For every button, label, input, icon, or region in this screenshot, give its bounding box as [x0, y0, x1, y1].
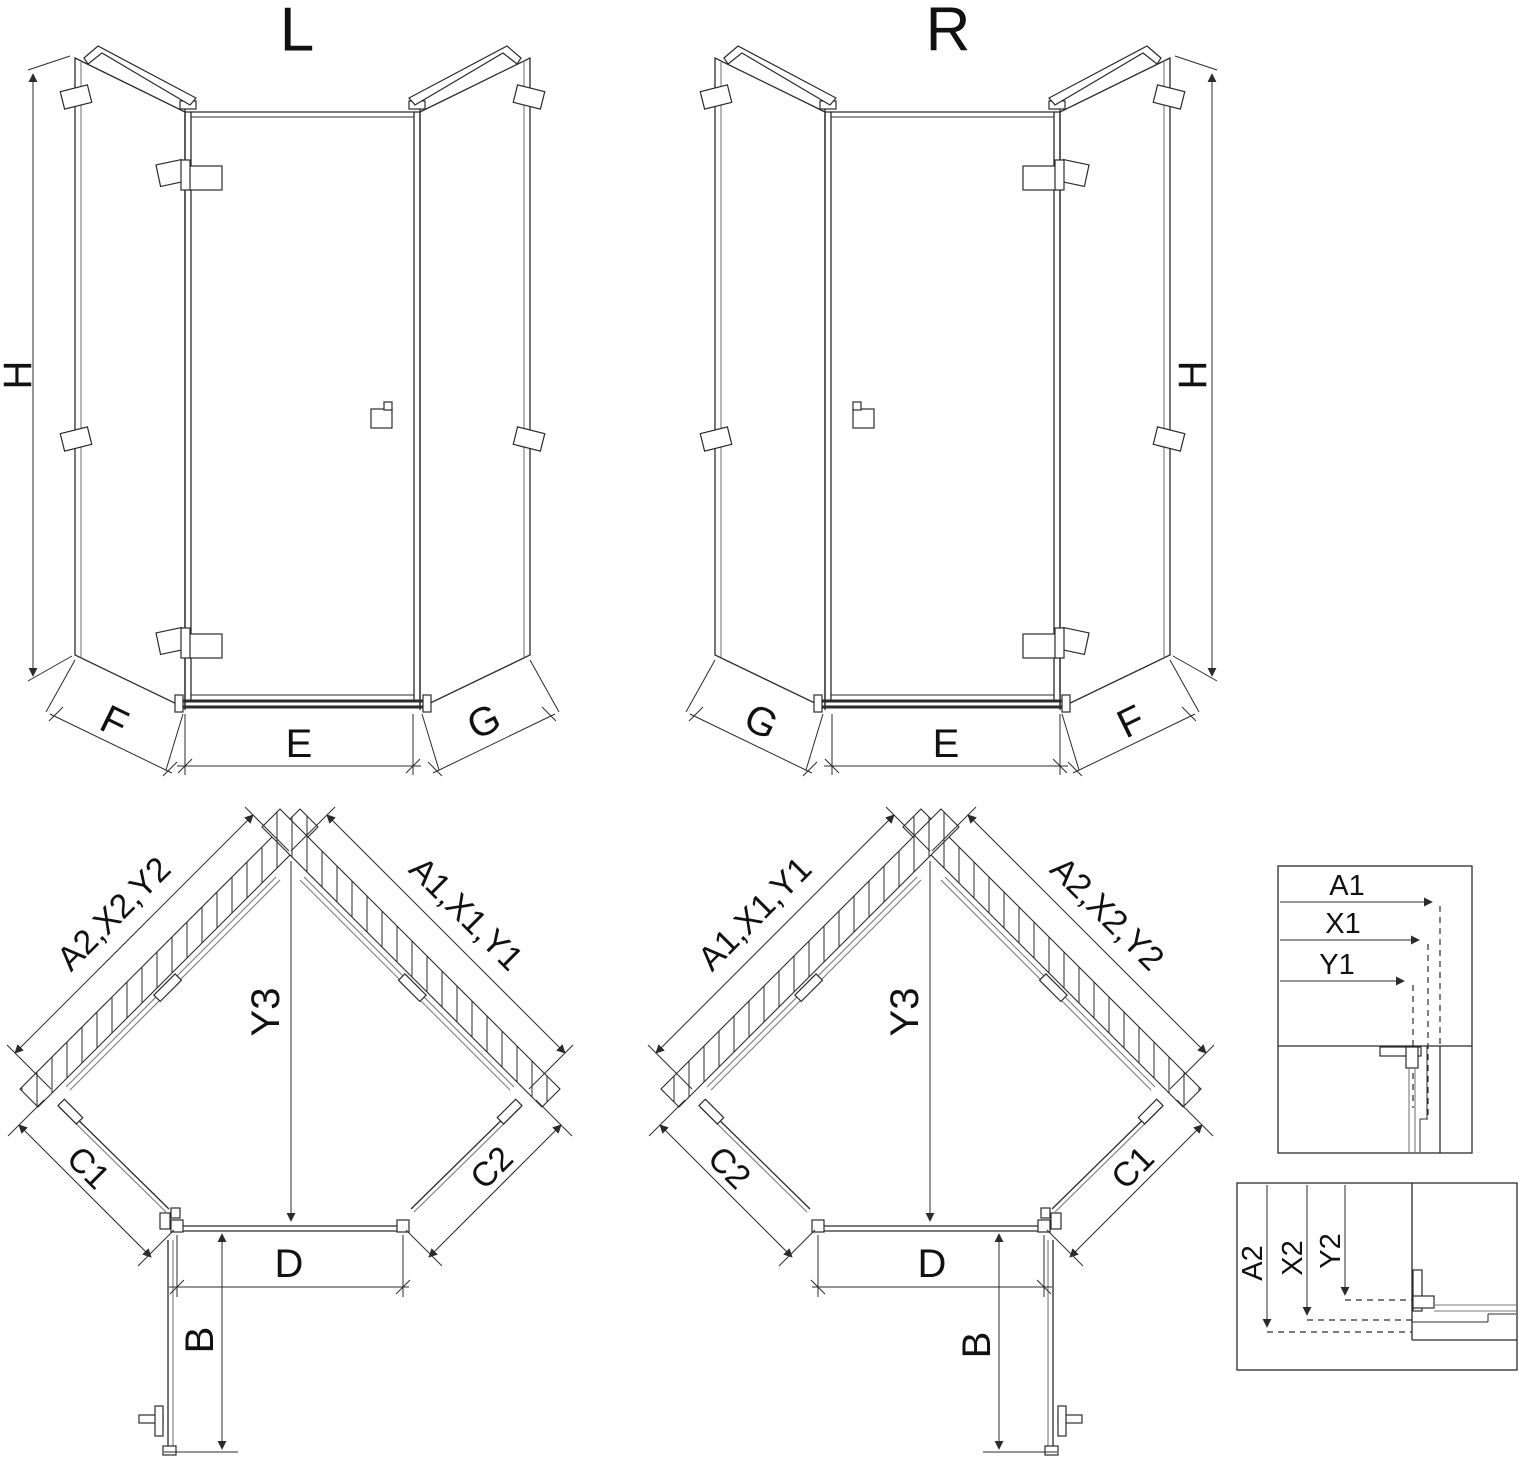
dim-label-f-right: F	[1110, 697, 1151, 747]
door-hinge-top	[156, 160, 222, 190]
plan-left-front-width-label: D	[275, 1242, 304, 1286]
plan-right-c1-label: C1	[1104, 1139, 1162, 1197]
dim-label-e-right: E	[933, 722, 960, 766]
plan-right-door-projection-label: B	[955, 1332, 999, 1359]
detail-top-y1-label: Y1	[1319, 949, 1354, 981]
elevation-cabin-linework-mirrored	[686, 46, 1217, 776]
detail-box-top	[1278, 866, 1472, 1153]
door-handle	[371, 402, 392, 428]
dim-label-height-left: H	[0, 361, 40, 390]
plan-view-linework	[7, 807, 573, 1455]
plan-right-front-width-label: D	[918, 1242, 947, 1286]
plan-right-depth-label: Y3	[883, 988, 927, 1037]
dim-label-height-right: H	[1171, 361, 1215, 390]
door-hinge-bottom	[156, 628, 222, 658]
plan-left-c1-label: C1	[59, 1139, 117, 1197]
elevation-cabin-linework	[28, 46, 559, 776]
detail-bottom-x2-label: X2	[1277, 1240, 1309, 1275]
plan-right-c2-label: C2	[700, 1139, 758, 1197]
dim-label-f-left: F	[93, 697, 134, 747]
title-right-variant: R	[926, 0, 971, 65]
detail-bottom-a2-label: A2	[1237, 1245, 1269, 1280]
open-door-plan	[139, 1240, 176, 1455]
technical-drawing-sheet: L H F E G R H G E F A2,X2,Y2 A1,X1,Y1 Y3…	[0, 0, 1523, 1460]
detail-top-x1-label: X1	[1325, 908, 1360, 940]
plan-left-c2-label: C2	[463, 1139, 521, 1197]
dim-label-e-left: E	[286, 722, 313, 766]
plan-left-door-projection-label: B	[178, 1327, 222, 1354]
plan-left-depth-label: Y3	[244, 988, 288, 1037]
title-left-variant: L	[280, 0, 314, 65]
plan-view-linework-mirrored	[648, 807, 1214, 1455]
detail-bottom-y2-label: Y2	[1315, 1233, 1347, 1268]
detail-top-a1-label: A1	[1329, 870, 1364, 902]
shower-enclosure-diagram: L H F E G R H G E F A2,X2,Y2 A1,X1,Y1 Y3…	[0, 0, 1523, 1460]
